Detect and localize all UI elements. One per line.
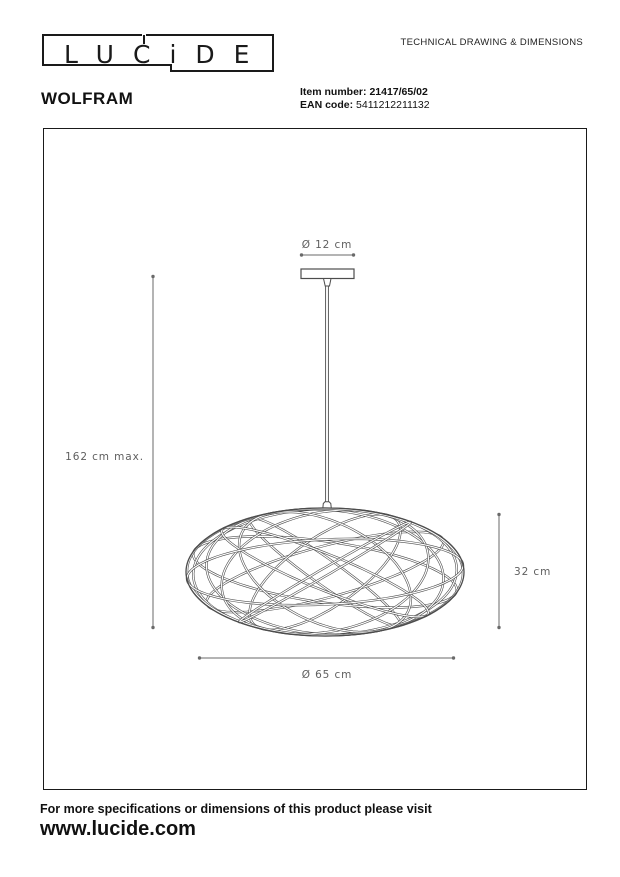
technical-drawing-frame: Ø 12 cm 162 cm max. bbox=[43, 128, 587, 790]
logo-letters: LUCiDE bbox=[64, 40, 268, 69]
product-meta: Item number: 21417/65/02 EAN code: 54112… bbox=[300, 86, 430, 112]
cage-bands bbox=[187, 509, 463, 636]
dimension-canopy-diameter: Ø 12 cm bbox=[300, 239, 355, 257]
dimension-max-height: 162 cm max. bbox=[65, 275, 155, 629]
spec-sheet-page: LUCiDE WOLFRAM TECHNICAL DRAWING & DIMEN… bbox=[0, 0, 620, 877]
shade-diameter-label: Ø 65 cm bbox=[302, 669, 353, 681]
suspension-rod bbox=[326, 286, 329, 502]
dimension-shade-diameter: Ø 65 cm bbox=[198, 656, 455, 681]
canopy-diameter-label: Ø 12 cm bbox=[302, 239, 353, 251]
item-number-value: 21417/65/02 bbox=[369, 86, 427, 98]
technical-drawing: Ø 12 cm 162 cm max. bbox=[44, 129, 585, 788]
document-type-title: TECHNICAL DRAWING & DIMENSIONS bbox=[401, 37, 583, 48]
max-height-label: 162 cm max. bbox=[65, 451, 144, 463]
item-number-label: Item number: bbox=[300, 86, 367, 98]
ean-code-value: 5411212211132 bbox=[356, 99, 430, 111]
ean-code-row: EAN code: 5411212211132 bbox=[300, 99, 430, 112]
item-number-row: Item number: 21417/65/02 bbox=[300, 86, 430, 99]
cord-grip bbox=[324, 279, 332, 287]
footer-note: For more specifications or dimensions of… bbox=[40, 802, 432, 816]
lucide-logo: LUCiDE bbox=[42, 34, 274, 72]
website-url: www.lucide.com bbox=[40, 818, 432, 841]
footer: For more specifications or dimensions of… bbox=[40, 802, 432, 841]
ean-code-label: EAN code: bbox=[300, 99, 353, 111]
ceiling-canopy bbox=[301, 269, 354, 279]
dimension-shade-height: 32 cm bbox=[497, 513, 551, 629]
shade-height-label: 32 cm bbox=[514, 566, 551, 578]
page-title: WOLFRAM bbox=[41, 89, 133, 109]
